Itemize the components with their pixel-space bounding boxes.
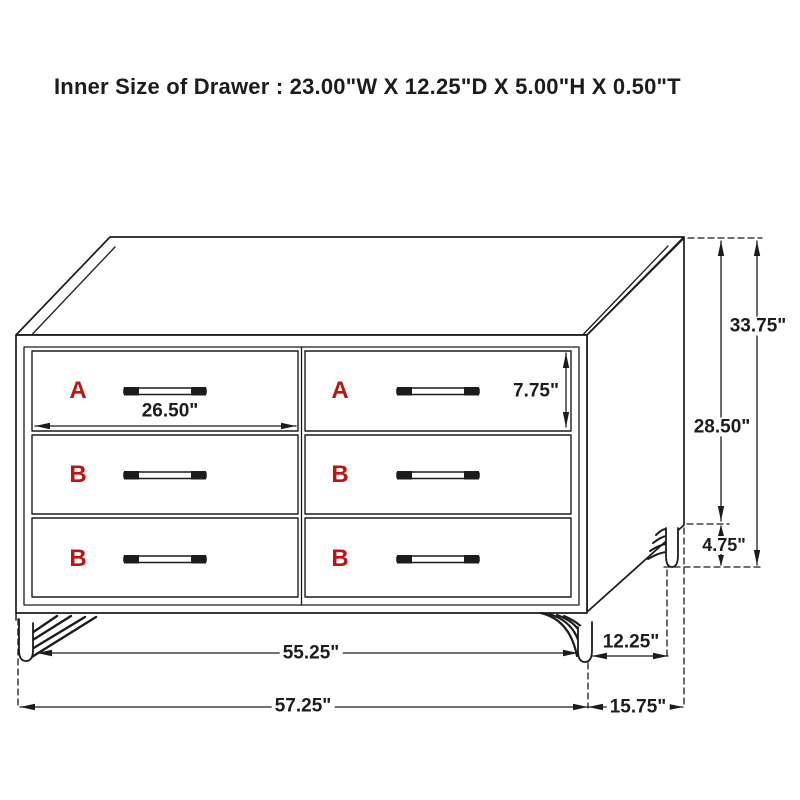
- drawer-letter-bottom-left: B: [69, 547, 86, 571]
- dresser-top-face: [16, 237, 684, 343]
- dresser-diagram: [0, 0, 800, 800]
- handle-bottom-right: [397, 555, 479, 564]
- drawer-letter-middle-left: B: [69, 463, 86, 487]
- handle-middle-left: [124, 471, 206, 480]
- dim-label-drawer-width: 26.50": [139, 402, 202, 421]
- handle-top-left: [124, 387, 206, 396]
- drawer-letter-bottom-right: B: [331, 547, 348, 571]
- dim-label-leg-span-depth: 12.25": [600, 633, 663, 652]
- dim-label-leg-height: 4.75": [699, 536, 749, 554]
- dim-label-overall-depth: 15.75": [607, 698, 670, 717]
- dresser-front-frame: [16, 335, 587, 620]
- dim-label-overall-width: 57.25": [272, 697, 335, 716]
- drawer-letter-top-right: A: [331, 379, 348, 403]
- dim-label-case-height: 28.50": [691, 418, 754, 437]
- dim-label-leg-span-width: 55.25": [280, 644, 343, 663]
- dimension-diagram-page: Inner Size of Drawer : 23.00"W X 12.25"D…: [0, 0, 800, 800]
- handle-middle-right: [397, 471, 479, 480]
- front-left-leg: [19, 616, 96, 661]
- handle-top-right: [397, 387, 479, 396]
- drawer-letter-top-left: A: [69, 379, 86, 403]
- drawer-letter-middle-right: B: [331, 463, 348, 487]
- dim-label-drawer-height: 7.75": [510, 382, 562, 401]
- dim-label-overall-height: 33.75": [727, 317, 790, 336]
- handle-bottom-left: [124, 555, 206, 564]
